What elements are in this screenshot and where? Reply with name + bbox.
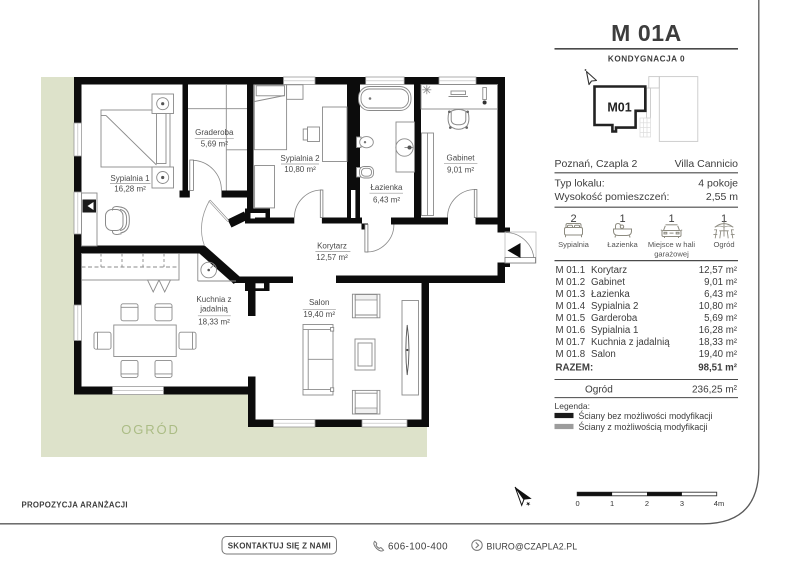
svg-text:12,57 m²: 12,57 m²: [699, 265, 738, 276]
svg-text:18,33 m²: 18,33 m²: [198, 317, 230, 326]
svg-text:2: 2: [645, 499, 649, 508]
svg-text:Miejsce w hali: Miejsce w hali: [648, 240, 696, 249]
svg-text:5,69 m²: 5,69 m²: [704, 313, 738, 324]
svg-text:1: 1: [610, 499, 614, 508]
svg-text:Korytarz: Korytarz: [317, 242, 347, 251]
svg-text:Garderoba: Garderoba: [591, 313, 638, 324]
svg-text:1: 1: [668, 213, 674, 225]
svg-text:Łazienka: Łazienka: [591, 289, 630, 300]
svg-text:M 01.7: M 01.7: [556, 337, 586, 348]
svg-text:4m: 4m: [714, 499, 724, 508]
svg-text:M 01.5: M 01.5: [556, 313, 586, 324]
svg-text:18,33 m²: 18,33 m²: [699, 337, 738, 348]
svg-text:Ogród: Ogród: [713, 240, 734, 249]
svg-text:16,28 m²: 16,28 m²: [114, 184, 146, 193]
svg-text:PROPOZYCJA ARANŻACJI: PROPOZYCJA ARANŻACJI: [22, 501, 128, 510]
svg-text:M 01.4: M 01.4: [556, 301, 586, 312]
svg-text:Gabinet: Gabinet: [446, 154, 475, 163]
svg-text:garażowej: garażowej: [654, 250, 689, 259]
svg-text:Łazienka: Łazienka: [607, 240, 638, 249]
svg-text:2,55 m: 2,55 m: [706, 191, 738, 203]
svg-text:Salon: Salon: [591, 349, 616, 360]
svg-text:Sypialnia 2: Sypialnia 2: [591, 301, 638, 312]
svg-text:Ogród: Ogród: [585, 385, 613, 396]
svg-text:Sypialnia 1: Sypialnia 1: [591, 325, 638, 336]
svg-text:98,51 m²: 98,51 m²: [698, 363, 738, 374]
svg-text:M01: M01: [607, 101, 631, 115]
svg-text:Kuchnia z jadalnią: Kuchnia z jadalnią: [591, 337, 670, 348]
svg-text:Łazienka: Łazienka: [370, 183, 403, 192]
svg-text:19,40 m²: 19,40 m²: [699, 349, 738, 360]
svg-text:jadalnią: jadalnią: [199, 305, 228, 314]
svg-text:Graderoba: Graderoba: [195, 128, 234, 137]
svg-text:Villa Cannicio: Villa Cannicio: [675, 158, 739, 170]
svg-text:606-100-400: 606-100-400: [388, 541, 448, 552]
svg-text:KONDYGNACJA 0: KONDYGNACJA 0: [608, 55, 685, 64]
svg-text:4 pokoje: 4 pokoje: [698, 178, 738, 190]
svg-text:12,57 m²: 12,57 m²: [316, 253, 348, 262]
svg-text:5,69 m²: 5,69 m²: [201, 139, 228, 148]
svg-text:RAZEM:: RAZEM:: [556, 363, 594, 374]
svg-text:9,01 m²: 9,01 m²: [704, 277, 738, 288]
svg-text:Ściany bez możliwości modyfika: Ściany bez możliwości modyfikacji: [579, 410, 713, 421]
svg-text:Ściany z możliwością modyfikac: Ściany z możliwością modyfikacji: [579, 421, 708, 432]
svg-text:Sypialnia: Sypialnia: [558, 240, 590, 249]
svg-text:Poznań, Czapla 2: Poznań, Czapla 2: [555, 158, 638, 170]
svg-text:Wysokość pomieszczeń:: Wysokość pomieszczeń:: [555, 191, 670, 203]
svg-text:9,01 m²: 9,01 m²: [447, 166, 474, 175]
svg-text:BIURO@CZAPLA2.PL: BIURO@CZAPLA2.PL: [487, 541, 578, 551]
svg-text:M 01.6: M 01.6: [556, 325, 586, 336]
svg-text:Korytarz: Korytarz: [591, 265, 627, 276]
svg-text:10,80 m²: 10,80 m²: [284, 165, 316, 174]
svg-text:M 01.1: M 01.1: [556, 265, 586, 276]
svg-text:Sypialnia 1: Sypialnia 1: [110, 174, 150, 183]
svg-text:M 01A: M 01A: [611, 20, 682, 46]
svg-text:6,43 m²: 6,43 m²: [373, 195, 400, 204]
svg-text:Typ lokalu:: Typ lokalu:: [555, 178, 605, 190]
svg-text:16,28 m²: 16,28 m²: [699, 325, 738, 336]
svg-text:Salon: Salon: [309, 298, 329, 307]
svg-text:236,25 m²: 236,25 m²: [692, 385, 738, 396]
svg-text:19,40 m²: 19,40 m²: [303, 310, 335, 319]
svg-text:M 01.3: M 01.3: [556, 289, 586, 300]
svg-text:Legenda:: Legenda:: [555, 401, 590, 411]
svg-text:SKONTAKTUJ SIĘ Z NAMI: SKONTAKTUJ SIĘ Z NAMI: [228, 541, 331, 550]
svg-text:Kuchnia z: Kuchnia z: [196, 295, 231, 304]
svg-text:OGRÓD: OGRÓD: [121, 422, 180, 437]
svg-text:Gabinet: Gabinet: [591, 277, 625, 288]
svg-text:1: 1: [619, 213, 625, 225]
svg-text:M 01.8: M 01.8: [556, 349, 586, 360]
svg-text:6,43 m²: 6,43 m²: [704, 289, 738, 300]
svg-text:3: 3: [680, 499, 684, 508]
svg-text:M 01.2: M 01.2: [556, 277, 586, 288]
svg-text:10,80 m²: 10,80 m²: [699, 301, 738, 312]
svg-text:0: 0: [576, 499, 580, 508]
svg-text:Sypialnia 2: Sypialnia 2: [280, 154, 320, 163]
